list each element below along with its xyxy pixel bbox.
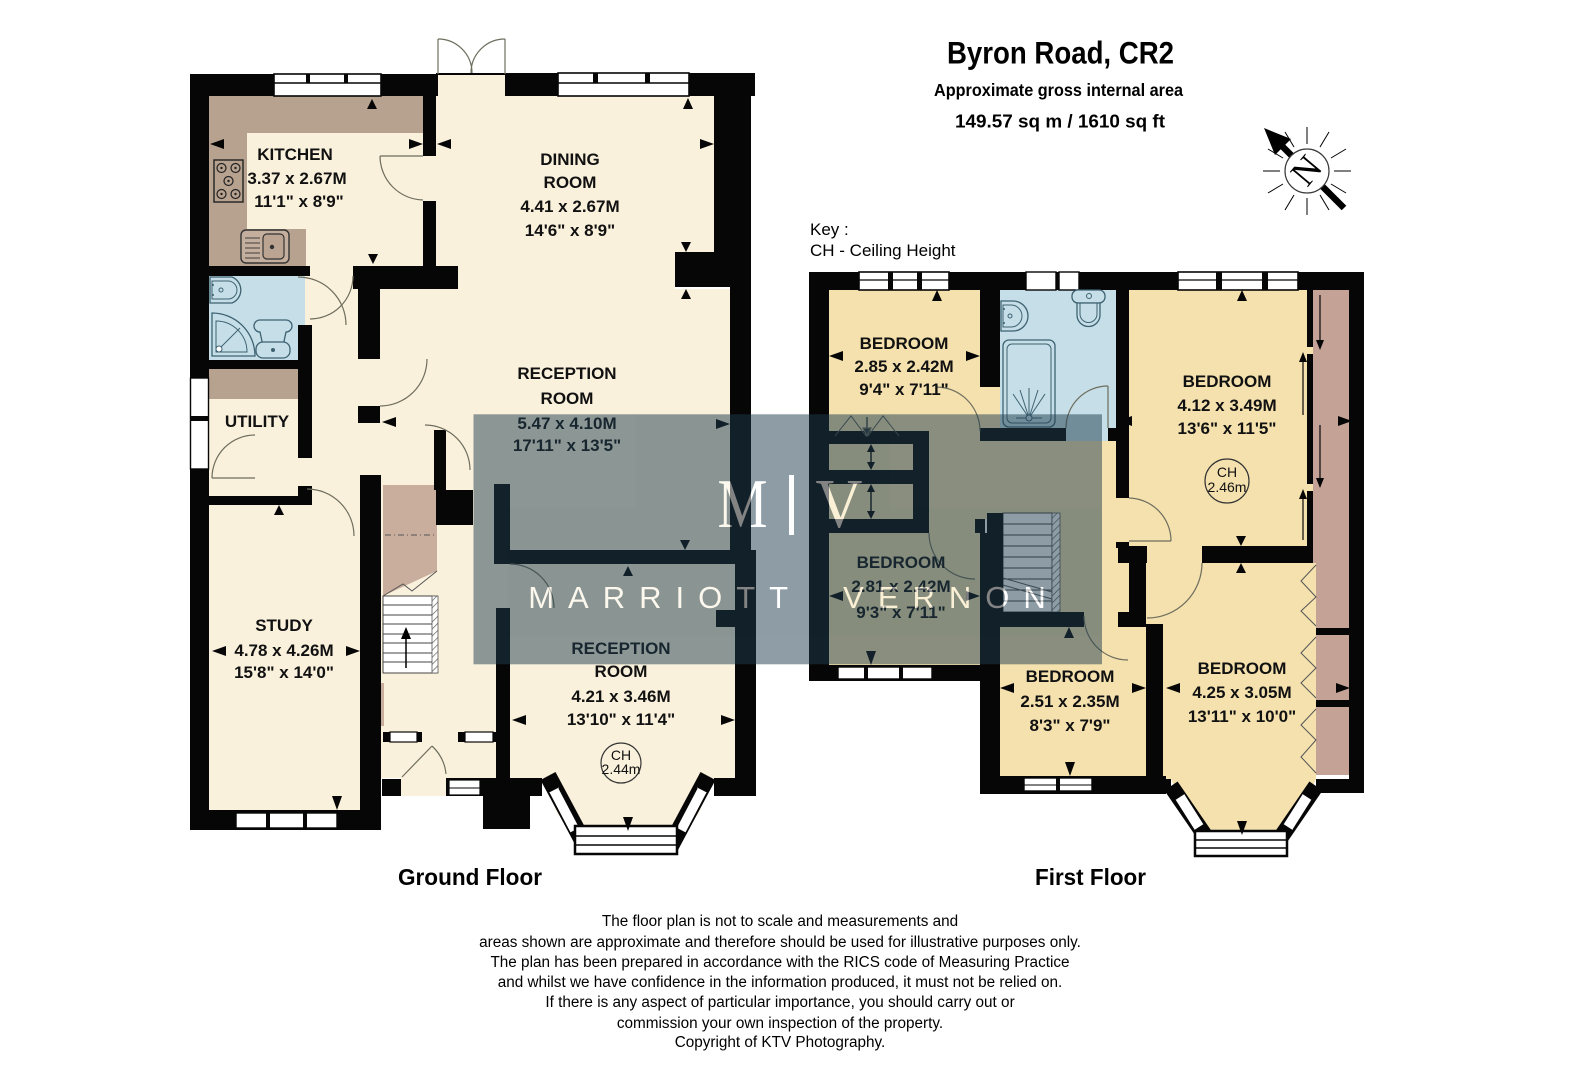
svg-text:BEDROOM: BEDROOM bbox=[1198, 659, 1287, 678]
svg-text:UTILITY: UTILITY bbox=[225, 412, 290, 431]
svg-text:8'3" x 7'9": 8'3" x 7'9" bbox=[1030, 716, 1111, 735]
svg-text:11'1" x 8'9": 11'1" x 8'9" bbox=[254, 192, 343, 211]
svg-text:STUDY: STUDY bbox=[255, 616, 313, 635]
svg-text:First Floor: First Floor bbox=[1035, 864, 1146, 890]
svg-text:149.57 sq m / 1610 sq ft: 149.57 sq m / 1610 sq ft bbox=[955, 111, 1165, 132]
svg-text:Ground Floor: Ground Floor bbox=[398, 864, 542, 890]
svg-text:2.44m: 2.44m bbox=[602, 761, 641, 777]
svg-text:2.85 x 2.42M: 2.85 x 2.42M bbox=[854, 357, 953, 376]
svg-text:ROOM: ROOM bbox=[544, 173, 597, 192]
svg-text:4.41 x 2.67M: 4.41 x 2.67M bbox=[520, 197, 619, 216]
svg-text:Key :: Key : bbox=[810, 220, 849, 239]
svg-text:3.37 x 2.67M: 3.37 x 2.67M bbox=[247, 169, 346, 188]
svg-text:Copyright of KTV Photography.: Copyright of KTV Photography. bbox=[675, 1034, 886, 1051]
svg-text:M: M bbox=[718, 466, 768, 543]
svg-text:BEDROOM: BEDROOM bbox=[860, 334, 949, 353]
svg-text:4.25 x 3.05M: 4.25 x 3.05M bbox=[1192, 683, 1291, 702]
svg-text:Approximate gross internal are: Approximate gross internal area bbox=[934, 80, 1183, 100]
svg-text:4.78 x 4.26M: 4.78 x 4.26M bbox=[234, 641, 333, 660]
svg-text:ROOM: ROOM bbox=[595, 662, 648, 681]
svg-text:15'8" x 14'0": 15'8" x 14'0" bbox=[234, 663, 334, 682]
svg-text:The floor plan is not to scale: The floor plan is not to scale and measu… bbox=[602, 913, 958, 930]
svg-text:and whilst we have confidence: and whilst we have confidence in the inf… bbox=[498, 974, 1063, 991]
svg-text:CH: CH bbox=[1217, 464, 1237, 480]
svg-text:If there is any aspect of part: If there is any aspect of particular imp… bbox=[545, 994, 1014, 1011]
svg-text:BEDROOM: BEDROOM bbox=[1026, 667, 1115, 686]
svg-text:13'11" x 10'0": 13'11" x 10'0" bbox=[1188, 707, 1296, 726]
svg-text:DINING: DINING bbox=[540, 150, 600, 169]
svg-text:commission your own inspection: commission your own inspection of the pr… bbox=[617, 1015, 943, 1032]
svg-text:4.21 x 3.46M: 4.21 x 3.46M bbox=[571, 687, 670, 706]
svg-text:BEDROOM: BEDROOM bbox=[1183, 372, 1272, 391]
svg-text:9'4" x 7'11": 9'4" x 7'11" bbox=[859, 380, 948, 399]
svg-text:V: V bbox=[816, 466, 863, 543]
svg-text:13'6" x 11'5": 13'6" x 11'5" bbox=[1178, 419, 1277, 438]
svg-text:areas shown are approximate an: areas shown are approximate and therefor… bbox=[479, 934, 1081, 951]
svg-text:2.46m: 2.46m bbox=[1208, 479, 1247, 495]
svg-text:MARRIOTT VERNON: MARRIOTT VERNON bbox=[528, 580, 1060, 615]
svg-text:KITCHEN: KITCHEN bbox=[257, 145, 333, 164]
svg-text:4.12 x 3.49M: 4.12 x 3.49M bbox=[1177, 396, 1276, 415]
svg-text:RECEPTION: RECEPTION bbox=[517, 364, 616, 383]
svg-text:14'6" x 8'9": 14'6" x 8'9" bbox=[525, 221, 615, 240]
svg-text:ROOM: ROOM bbox=[541, 389, 594, 408]
svg-text:13'10" x 11'4": 13'10" x 11'4" bbox=[567, 710, 675, 729]
svg-text:The plan has been prepared in: The plan has been prepared in accordance… bbox=[490, 954, 1069, 971]
svg-text:CH - Ceiling Height: CH - Ceiling Height bbox=[810, 241, 956, 260]
svg-text:2.51 x 2.35M: 2.51 x 2.35M bbox=[1020, 692, 1119, 711]
svg-text:Byron Road, CR2: Byron Road, CR2 bbox=[947, 35, 1174, 71]
